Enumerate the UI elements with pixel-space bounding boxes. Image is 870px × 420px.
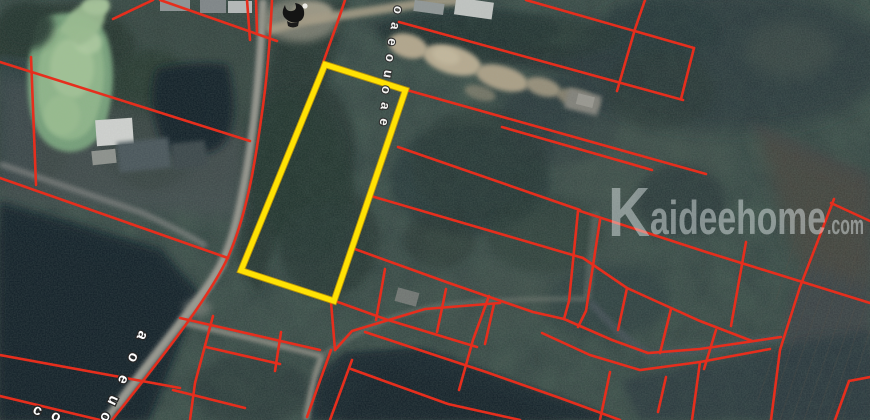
svg-text:K: K (608, 173, 650, 251)
svg-text:.com: .com (827, 210, 864, 240)
svg-text:aideehome: aideehome (650, 191, 826, 244)
